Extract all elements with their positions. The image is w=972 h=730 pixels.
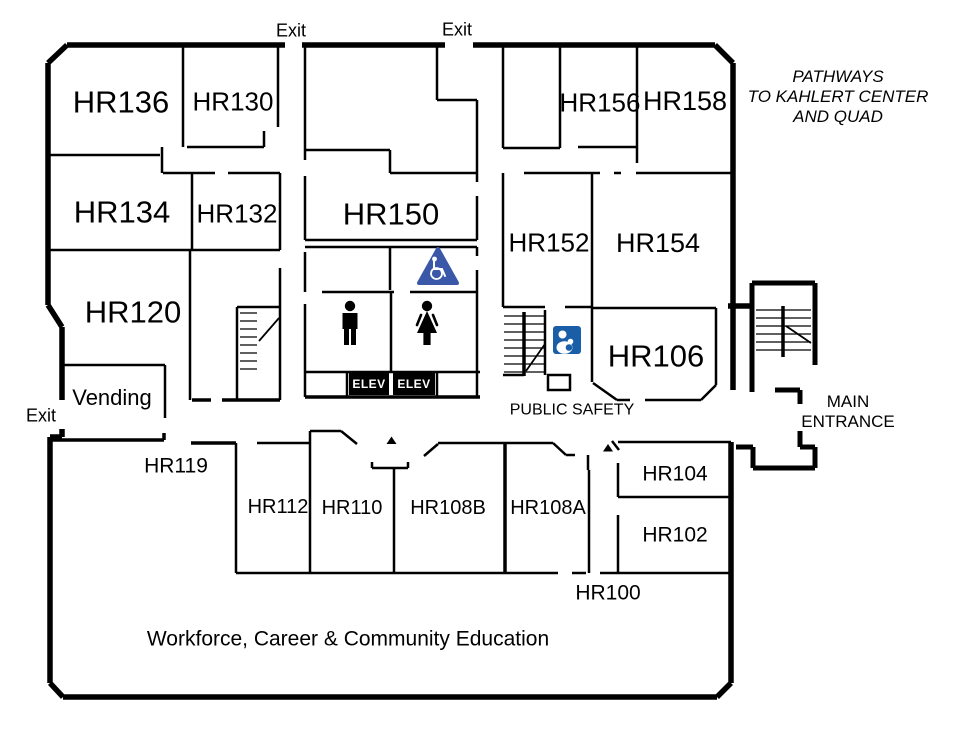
room-label-hr152: HR152 bbox=[509, 228, 590, 259]
room-label-hr102: HR102 bbox=[642, 524, 707, 549]
room-label-hr136: HR136 bbox=[73, 85, 170, 122]
room-label-hr134: HR134 bbox=[74, 195, 171, 232]
room-label-hr110: HR110 bbox=[322, 497, 383, 521]
room-label-hr119: HR119 bbox=[144, 455, 208, 480]
room-label-hr108a: HR108A bbox=[510, 497, 586, 521]
door-marker-icon bbox=[603, 444, 613, 452]
exit-label-left: Exit bbox=[26, 405, 56, 426]
elevator-left: ELEV bbox=[349, 372, 389, 395]
room-label-hr108b: HR108B bbox=[410, 497, 486, 521]
public-safety-label: PUBLIC SAFETY bbox=[510, 402, 634, 421]
room-label-hr106: HR106 bbox=[608, 339, 705, 376]
public-safety-icon bbox=[553, 326, 581, 354]
exit-label-top-center: Exit bbox=[442, 19, 472, 40]
female-restroom-icon bbox=[413, 296, 441, 348]
room-label-hr156: HR156 bbox=[560, 88, 641, 119]
room-label-vending: Vending bbox=[72, 385, 152, 411]
elevator-right-label: ELEV bbox=[397, 377, 430, 391]
room-label-hr154: HR154 bbox=[616, 228, 700, 260]
entrance-vestibule-walls bbox=[736, 283, 815, 468]
room-label-hr112: HR112 bbox=[248, 496, 309, 520]
main-entrance-line1: MAIN bbox=[801, 392, 895, 412]
room-label-hr104: HR104 bbox=[642, 463, 707, 488]
room-label-hr132: HR132 bbox=[197, 199, 278, 230]
elevator-left-label: ELEV bbox=[352, 377, 385, 391]
room-label-hr120: HR120 bbox=[85, 295, 182, 332]
floor-plan: ELEV ELEV Exit Exit Exit HR136 HR130 HR1… bbox=[0, 0, 972, 730]
room-label-hr150: HR150 bbox=[343, 197, 440, 234]
room-label-hr130: HR130 bbox=[193, 87, 274, 118]
room-label-hr100: HR100 bbox=[575, 582, 640, 607]
department-banner: Workforce, Career & Community Education bbox=[147, 628, 549, 653]
door-marker-icon bbox=[387, 437, 397, 445]
room-label-hr158: HR158 bbox=[643, 86, 727, 118]
pathways-note: PATHWAYS TO KAHLERT CENTER AND QUAD bbox=[748, 67, 929, 127]
wheelchair-accessible-icon bbox=[415, 245, 461, 287]
main-entrance-line2: ENTRANCE bbox=[801, 412, 895, 432]
male-restroom-icon bbox=[336, 296, 364, 348]
pathways-line1: PATHWAYS bbox=[748, 67, 929, 87]
pathways-line2: TO KAHLERT CENTER bbox=[748, 87, 929, 107]
exit-label-top-left: Exit bbox=[276, 20, 306, 41]
main-entrance-label: MAIN ENTRANCE bbox=[801, 392, 895, 432]
elevator-right: ELEV bbox=[393, 372, 435, 395]
pathways-line3: AND QUAD bbox=[748, 107, 929, 127]
